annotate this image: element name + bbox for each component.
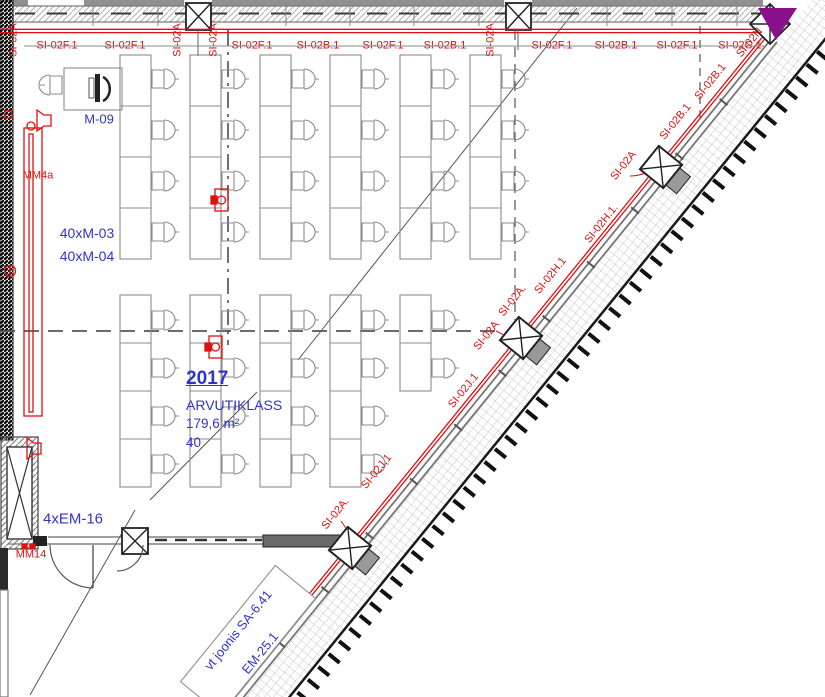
teacher-station-label: M-09 bbox=[84, 113, 114, 126]
chair-icon bbox=[222, 69, 249, 89]
pc-icon bbox=[89, 78, 94, 98]
chair-icon bbox=[362, 171, 389, 191]
chair-icon bbox=[292, 454, 319, 474]
monitor-code-label: 40xM-03 bbox=[60, 226, 114, 240]
chair-icon bbox=[292, 358, 319, 378]
chair-icon bbox=[292, 310, 319, 330]
desk-column bbox=[120, 55, 179, 259]
chair-icon bbox=[152, 69, 179, 89]
chair-icon bbox=[222, 310, 249, 330]
chair-icon bbox=[432, 310, 459, 330]
floor-plan: SI-02F.1 SI-02F.1 SI-02F.1 SI-02B.1 SI-0… bbox=[0, 0, 825, 697]
monitor-arc-icon bbox=[103, 77, 110, 101]
cable-label: SI-02F.1 bbox=[657, 41, 698, 52]
chair-icon bbox=[152, 310, 179, 330]
chair-icon bbox=[432, 358, 459, 378]
desk-column bbox=[330, 55, 389, 259]
chair-icon bbox=[222, 222, 249, 242]
desk-column bbox=[260, 295, 319, 487]
floor-socket-symbols bbox=[205, 189, 228, 358]
plan-linework bbox=[0, 0, 825, 697]
chair-icon bbox=[152, 120, 179, 140]
chair-icon bbox=[292, 222, 319, 242]
desk-column bbox=[400, 55, 459, 259]
monitor-icon bbox=[95, 74, 100, 102]
chair-icon bbox=[432, 120, 459, 140]
cable-label: SI-02F.1 bbox=[363, 41, 404, 52]
cable-label-vertical: SI-02A bbox=[173, 23, 184, 57]
cable-label-vertical: SI-02A bbox=[486, 23, 497, 57]
door-swing-arc bbox=[50, 545, 93, 588]
cable-label: SI-02B.1 bbox=[595, 41, 638, 52]
left-wall bbox=[0, 0, 38, 697]
desk-column bbox=[470, 55, 529, 259]
desk-column bbox=[400, 295, 459, 391]
chair-icon bbox=[432, 69, 459, 89]
cable-label: SI-02F.1 bbox=[232, 41, 273, 52]
desk-column bbox=[120, 295, 179, 487]
bottom-wall bbox=[8, 528, 347, 588]
chair-icon bbox=[362, 310, 389, 330]
cable-label-vertical: SI-02A bbox=[9, 23, 20, 57]
desk-column bbox=[260, 55, 319, 259]
cable-label: SI-02F.1 bbox=[532, 41, 573, 52]
room-area: 179,6 m² bbox=[186, 417, 239, 431]
chair-icon bbox=[222, 171, 249, 191]
chair-icon bbox=[152, 406, 179, 426]
chair-icon bbox=[432, 222, 459, 242]
chair-icon bbox=[362, 69, 389, 89]
av-riser-label: MM4a bbox=[23, 171, 54, 182]
cable-label: SI-02F.1 bbox=[105, 41, 146, 52]
desk-column bbox=[190, 295, 249, 487]
av-junction-label: MM14 bbox=[16, 550, 47, 561]
chair-icon bbox=[152, 222, 179, 242]
chair-icon bbox=[39, 75, 62, 95]
cable-label: SI-02B.1 bbox=[424, 41, 467, 52]
chair-icon bbox=[152, 171, 179, 191]
chair-icon bbox=[362, 120, 389, 140]
chair-icon bbox=[292, 171, 319, 191]
socket-code-label: 4xEM-16 bbox=[43, 512, 103, 527]
top-wall bbox=[0, 0, 768, 26]
chair-icon bbox=[292, 120, 319, 140]
chair-icon bbox=[362, 358, 389, 378]
desk-column bbox=[190, 55, 249, 259]
room-capacity: 40 bbox=[186, 436, 201, 450]
cable-label-vertical: SI-02A bbox=[209, 23, 220, 57]
chair-icon bbox=[152, 358, 179, 378]
teacher-workstation bbox=[39, 68, 122, 110]
cable-label: SI-02F.1 bbox=[37, 41, 78, 52]
room-name: ARVUTIKLASS bbox=[186, 398, 282, 412]
chair-icon bbox=[222, 454, 249, 474]
room-number: 2017 bbox=[186, 369, 228, 388]
chair-icon bbox=[362, 222, 389, 242]
computer-code-label: 40xM-04 bbox=[60, 249, 114, 263]
chair-icon bbox=[152, 454, 179, 474]
chair-icon bbox=[292, 406, 319, 426]
chair-icon bbox=[362, 406, 389, 426]
chair-icon bbox=[222, 120, 249, 140]
chair-icon bbox=[292, 69, 319, 89]
cable-label: SI-02B.1 bbox=[297, 41, 340, 52]
